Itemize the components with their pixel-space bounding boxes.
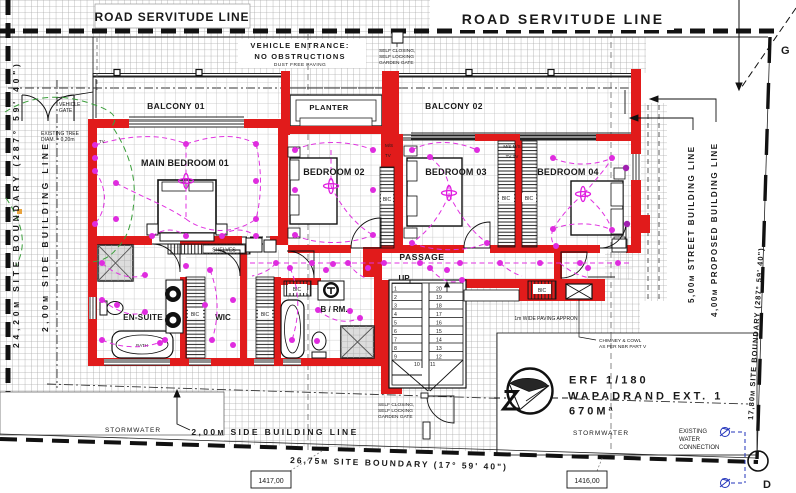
svg-text:GATE: GATE [59,108,73,114]
svg-text:GARDEN GATE: GARDEN GATE [378,414,413,420]
svg-text:GARDEN GATE: GARDEN GATE [379,60,414,66]
svg-text:17: 17 [436,312,442,318]
svg-text:BIC: BIC [525,196,534,202]
svg-text:13: 13 [436,346,442,352]
svg-text:670Mª: 670Mª [569,406,616,418]
svg-text:7: 7 [394,338,397,344]
svg-text:6: 6 [394,329,397,335]
svg-text:NO OBSTRUCTIONS: NO OBSTRUCTIONS [254,52,345,61]
svg-text:3: 3 [394,304,397,310]
svg-text:2,00M SIDE BUILDING LINE: 2,00M SIDE BUILDING LINE [191,427,358,437]
svg-text:2: 2 [394,295,397,301]
svg-text:SELF CLOSING,: SELF CLOSING, [379,48,415,54]
svg-text:M/S M/S: M/S M/S [503,144,520,149]
svg-text:9: 9 [394,355,397,361]
svg-text:2,00M SIDE BUILDING LINE: 2,00M SIDE BUILDING LINE [40,141,50,332]
svg-text:BALCONY 01: BALCONY 01 [147,101,205,111]
svg-text:BIC: BIC [191,312,200,318]
svg-text:WIC: WIC [215,313,231,322]
svg-text:BALCONY 02: BALCONY 02 [425,101,483,111]
svg-text:BIC: BIC [383,197,392,203]
svg-text:VEHICLE ENTRANCE:: VEHICLE ENTRANCE: [250,41,349,50]
svg-text:TV: TV [385,153,391,158]
svg-text:STORMWATER: STORMWATER [105,427,161,434]
svg-text:PLANTER: PLANTER [309,103,348,112]
svg-text:11: 11 [430,362,435,368]
svg-text:SELF LOCKING: SELF LOCKING [379,54,414,60]
svg-text:BIC: BIC [502,196,511,202]
svg-text:B / RM.: B / RM. [320,305,347,314]
svg-text:WATER: WATER [679,437,701,443]
svg-text:4: 4 [394,312,397,318]
svg-text:G: G [781,45,790,57]
svg-text:5: 5 [394,321,397,327]
svg-text:M/S: M/S [385,143,393,148]
svg-text:15: 15 [436,329,442,335]
svg-text:CHIMNEY & COWL: CHIMNEY & COWL [599,338,642,344]
svg-text:12: 12 [436,355,442,361]
svg-text:8: 8 [394,346,397,352]
svg-text:BEDROOM 04: BEDROOM 04 [537,167,599,177]
svg-text:AS PER NBR PART V: AS PER NBR PART V [599,344,647,350]
svg-text:WAPADRAND EXT. 1: WAPADRAND EXT. 1 [568,391,723,403]
svg-text:PASSAGE: PASSAGE [399,252,444,262]
svg-text:STORMWATER: STORMWATER [573,430,629,437]
svg-text:10: 10 [414,362,420,368]
svg-text:1417,00: 1417,00 [258,478,283,485]
svg-text:1416,00: 1416,00 [574,478,599,485]
svg-text:18: 18 [436,304,442,310]
svg-text:19: 19 [436,295,442,301]
svg-text:ERF 1/180: ERF 1/180 [569,375,649,387]
svg-text:1m WIDE PAVING APPRON: 1m WIDE PAVING APPRON [514,316,578,322]
svg-text:14: 14 [436,338,442,344]
svg-text:4,00M PROPOSED BUILDING LINE: 4,00M PROPOSED BUILDING LINE [710,142,719,317]
svg-text:20: 20 [436,287,442,293]
svg-text:D: D [763,479,771,491]
svg-text:SELF LOCKING: SELF LOCKING [378,408,413,414]
svg-text:BEDROOM 02: BEDROOM 02 [303,167,365,177]
svg-text:1: 1 [394,287,397,293]
svg-text:SELF CLOSING,: SELF CLOSING, [378,402,414,408]
svg-text:BIC: BIC [538,288,547,294]
svg-text:BIC: BIC [261,312,270,318]
svg-text:5,00M STREET BUILDING LINE: 5,00M STREET BUILDING LINE [687,145,696,303]
svg-text:EXISTING: EXISTING [679,429,707,435]
svg-text:CONNECTION: CONNECTION [679,445,719,451]
svg-text:TV: TV [99,139,105,144]
svg-text:ROAD SERVITUDE LINE: ROAD SERVITUDE LINE [95,10,250,24]
svg-text:BEDROOM 03: BEDROOM 03 [425,167,487,177]
svg-text:DUST FREE PAVING: DUST FREE PAVING [274,62,326,68]
svg-text:ROAD SERVITUDE LINE: ROAD SERVITUDE LINE [462,11,665,27]
svg-text:BIC: BIC [293,287,302,293]
svg-text:16: 16 [436,321,442,327]
svg-text:MAIN BEDROOM 01: MAIN BEDROOM 01 [141,158,229,168]
svg-text:TV TV: TV TV [506,154,519,159]
